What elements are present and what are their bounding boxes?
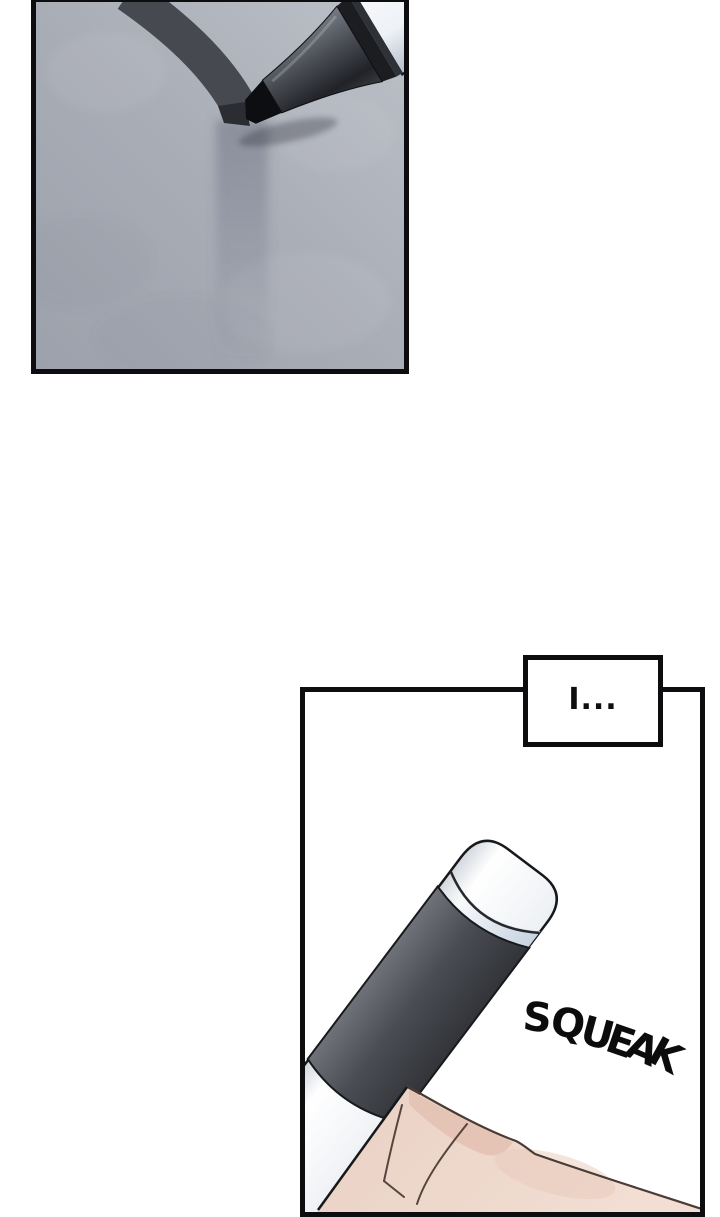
sfx-squeak: S Q U E A K <box>515 992 700 1102</box>
whiteboard-scene <box>36 2 404 369</box>
speech-bubble-text: I... <box>568 682 617 717</box>
speech-bubble: I... <box>523 655 663 747</box>
panel-hand-marker-closeup <box>300 687 705 1217</box>
marker-reflection-shadow <box>216 120 268 369</box>
panel-whiteboard-drawing <box>31 0 409 374</box>
hand-marker-scene <box>305 692 700 1212</box>
